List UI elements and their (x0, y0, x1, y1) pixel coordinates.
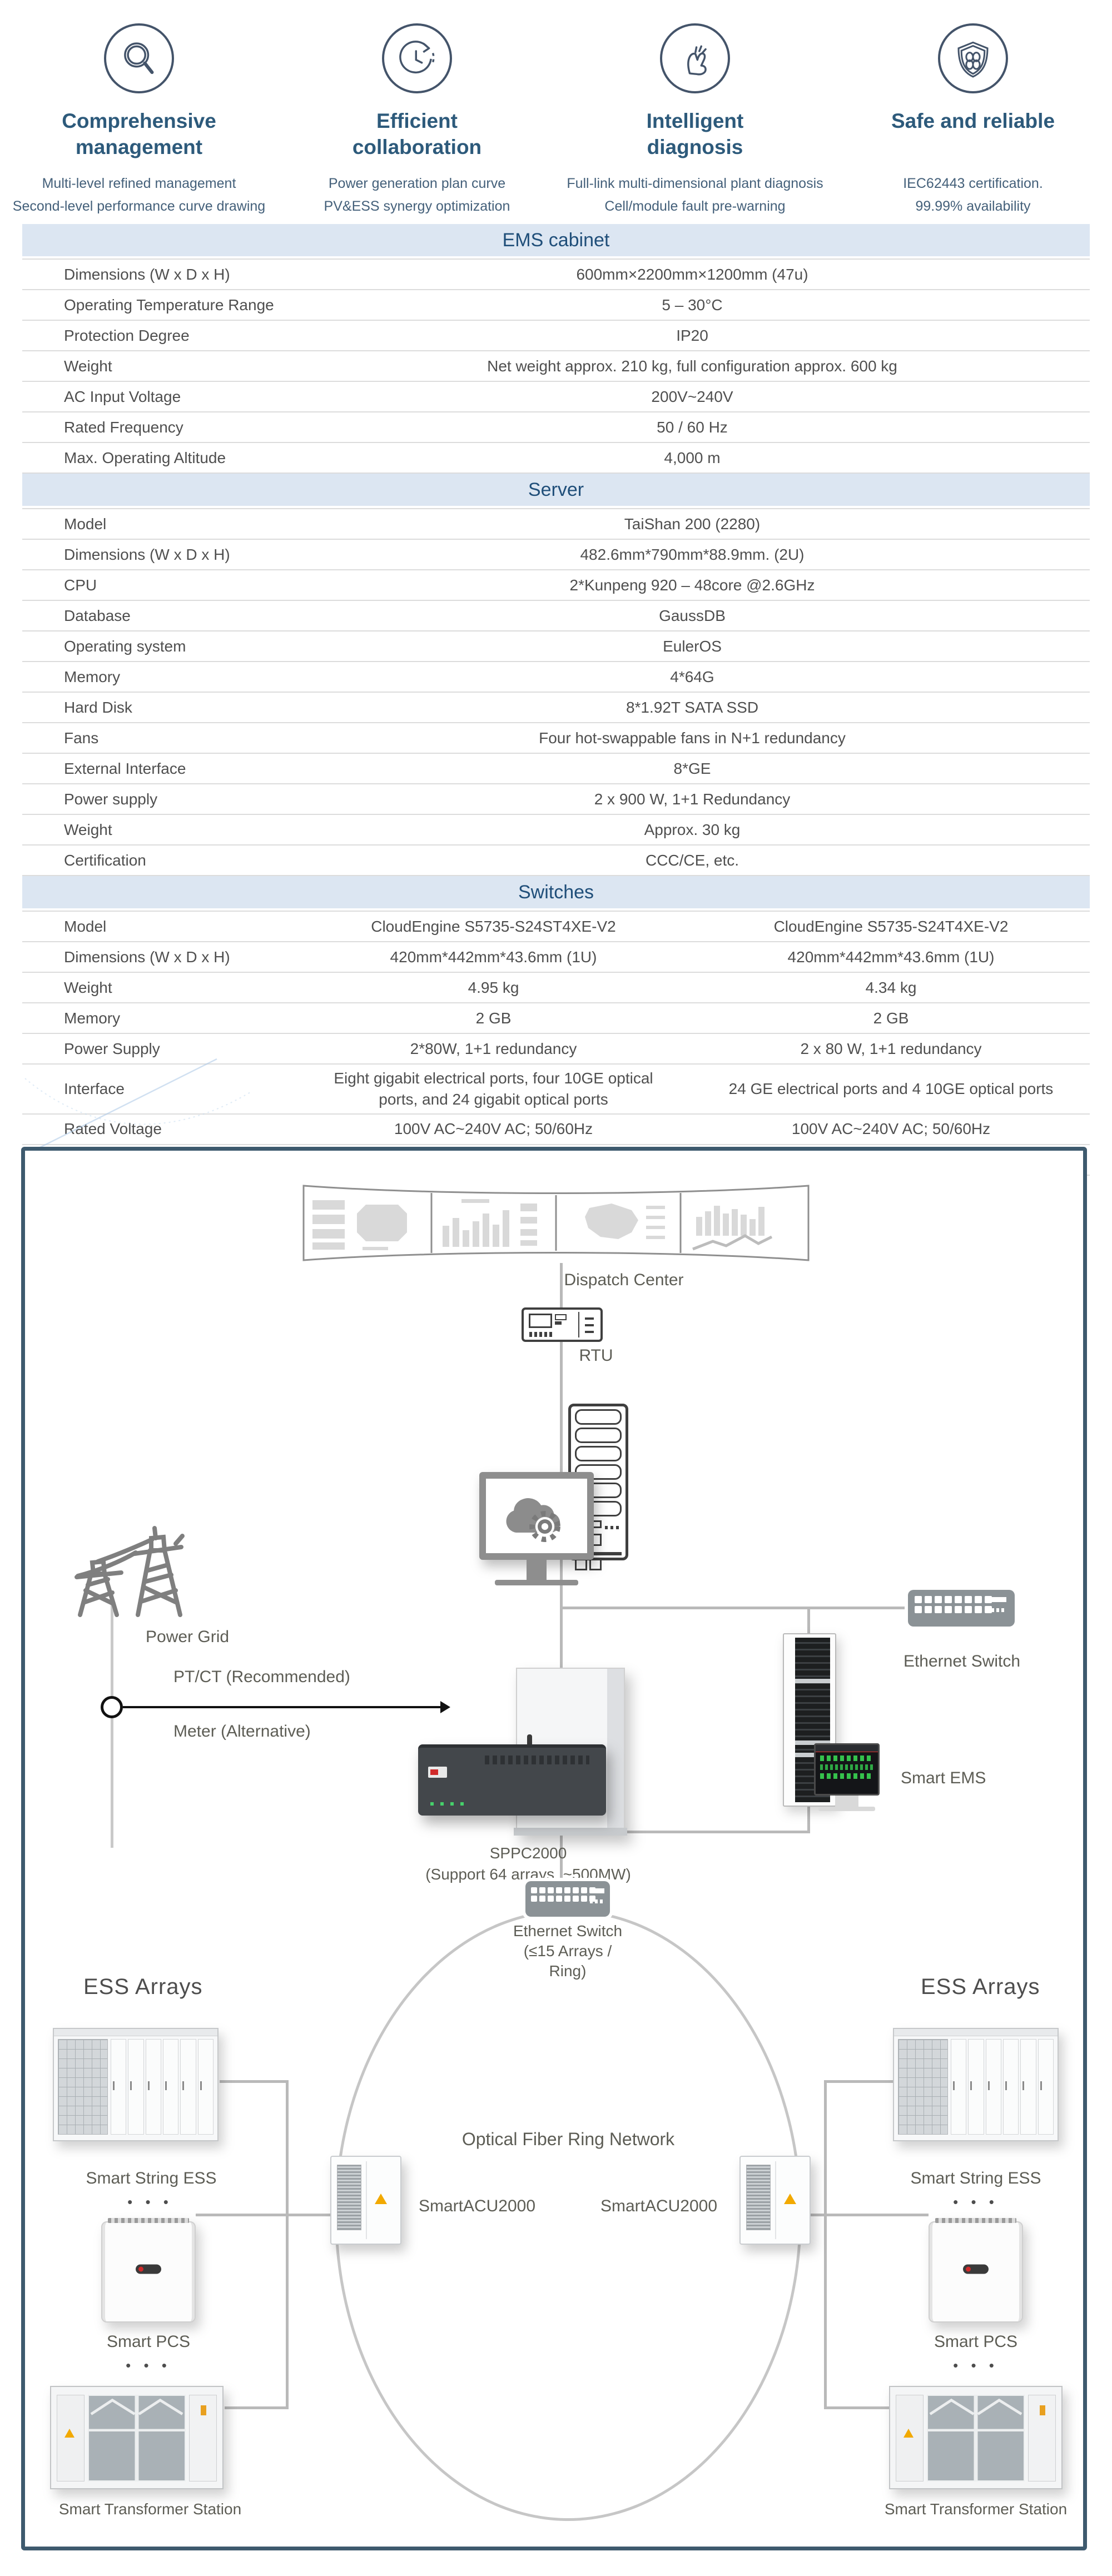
spec-tables: EMS cabinet Dimensions (W x D x H)600mm×… (22, 224, 1090, 1176)
ring-switch-label-2: (≤15 Arrays / (524, 1942, 612, 1960)
ess-arrays-left-heading: ESS Arrays (83, 1975, 203, 2000)
power-grid-icon (72, 1519, 185, 1618)
table-row: Dimensions (W x D x H)420mm*442mm*43.6mm… (22, 942, 1090, 973)
cycle-clock-icon (382, 23, 452, 93)
table-row: Memory4*64G (22, 662, 1090, 693)
left-ess-link (220, 2080, 287, 2083)
table-ems-cabinet: EMS cabinet Dimensions (W x D x H)600mm×… (22, 224, 1090, 474)
smart-ems-monitor-base (818, 1807, 875, 1811)
right-ess-link (825, 2080, 893, 2083)
feature-efficient-collaboration: Efficientcollaboration Power generation … (278, 16, 556, 218)
smart-pcs-left-label: Smart PCS (107, 2333, 190, 2351)
right-transformer-link (825, 2406, 889, 2409)
feature-comprehensive-management: Comprehensivemanagement Multi-level refi… (0, 16, 278, 218)
snap-finger-icon (660, 23, 730, 93)
rtu-icon (522, 1307, 603, 1342)
ess-arrays-right-heading: ESS Arrays (921, 1975, 1040, 2000)
smart-string-ess-left-label: Smart String ESS (86, 2169, 216, 2188)
table-row: Memory2 GB2 GB (22, 1003, 1090, 1034)
ethernet-switch-right-icon (908, 1590, 1015, 1627)
meter-label: Meter (Alternative) (173, 1722, 311, 1741)
feature-title: Intelligentdiagnosis (556, 108, 834, 163)
table-row: DatabaseGaussDB (22, 601, 1090, 631)
table-row: Protection DegreeIP20 (22, 321, 1090, 351)
smart-string-ess-left-icon (53, 2028, 219, 2141)
ellipsis-dots: • • • (953, 2357, 999, 2374)
ethernet-branch-line (560, 1607, 909, 1609)
grid-bus-line (111, 1604, 113, 1848)
dispatch-center-wall (300, 1181, 812, 1265)
table-row: Dimensions (W x D x H)600mm×2200mm×1200m… (22, 260, 1090, 290)
shield-icon (938, 23, 1008, 93)
table-row: External Interface8*GE (22, 754, 1090, 784)
table-row: AC Input Voltage200V~240V (22, 382, 1090, 412)
table-server: Server ModelTaiShan 200 (2280) Dimension… (22, 474, 1090, 876)
smartacu2000-right-icon (739, 2156, 811, 2245)
table-row: ModelTaiShan 200 (2280) (22, 509, 1090, 540)
optical-fiber-ring (335, 1909, 802, 2521)
ring-label: Optical Fiber Ring Network (462, 2129, 674, 2150)
table-row: Hard Disk8*1.92T SATA SSD (22, 693, 1090, 723)
ptct-label: PT/CT (Recommended) (173, 1668, 350, 1687)
ems-return-line-v (807, 1806, 810, 1833)
feature-strip: Comprehensivemanagement Multi-level refi… (0, 16, 1112, 218)
sppc2000-icon (418, 1744, 606, 1816)
smartacu2000-left-icon (330, 2156, 401, 2245)
table-header: EMS cabinet (22, 224, 1090, 256)
smart-transformer-right-icon (889, 2386, 1063, 2489)
feature-intelligent-diagnosis: Intelligentdiagnosis Full-link multi-dim… (556, 16, 834, 218)
decor-pencil-stroke (11, 1045, 300, 1156)
left-transformer-link (225, 2406, 287, 2409)
smartacu2000-right-label: SmartACU2000 (600, 2197, 717, 2216)
spec-page: Comprehensivemanagement Multi-level refi… (0, 0, 1112, 2576)
feature-desc: Full-link multi-dimensional plant diagno… (556, 172, 834, 218)
table-row: WeightNet weight approx. 210 kg, full co… (22, 351, 1090, 382)
table-row: CertificationCCC/CE, etc. (22, 846, 1090, 876)
table-header: Switches (22, 876, 1090, 908)
sppc2000-label: SPPC2000 (490, 1844, 567, 1862)
table-row: Max. Operating Altitude4,000 m (22, 443, 1090, 474)
ptct-arrow-head (440, 1701, 450, 1713)
smart-pcs-right-icon (929, 2221, 1023, 2323)
ptct-arrow-line (123, 1706, 440, 1708)
ring-switch-label-1: Ethernet Switch (513, 1922, 622, 1940)
ellipsis-dots: • • • (126, 2357, 171, 2374)
table-row: WeightApprox. 30 kg (22, 815, 1090, 846)
feature-safe-reliable: Safe and reliable IEC62443 certification… (834, 16, 1112, 218)
smart-pcs-right-label: Smart PCS (934, 2333, 1017, 2351)
table-row: Operating Temperature Range5 – 30°C (22, 290, 1090, 321)
ring-ethernet-switch-icon (525, 1881, 610, 1917)
table-row: Weight4.95 kg4.34 kg (22, 973, 1090, 1003)
grid-tap-node (101, 1696, 123, 1718)
smart-pcs-left-icon (101, 2221, 196, 2323)
smart-string-ess-right-label: Smart String ESS (910, 2169, 1041, 2188)
monitor-base (495, 1580, 578, 1585)
feature-title: Efficientcollaboration (278, 108, 556, 163)
ring-switch-label-3: Ring) (549, 1962, 587, 1980)
feature-title: Comprehensivemanagement (0, 108, 278, 163)
ethernet-switch-right-label: Ethernet Switch (904, 1652, 1020, 1671)
power-grid-label: Power Grid (146, 1628, 229, 1647)
smart-string-ess-right-icon (893, 2028, 1059, 2141)
table-row: FansFour hot-swappable fans in N+1 redun… (22, 723, 1090, 754)
right-column-bus (824, 2080, 827, 2409)
table-row: CPU2*Kunpeng 920 – 48core @2.6GHz (22, 570, 1090, 601)
management-monitor-icon (479, 1472, 594, 1560)
left-pcs-link (196, 2214, 330, 2216)
smart-ems-monitor-stand (835, 1796, 858, 1808)
dispatch-center-label: Dispatch Center (564, 1271, 683, 1290)
table-row: Power supply2 x 900 W, 1+1 Redundancy (22, 784, 1090, 815)
monitor-stand (527, 1560, 547, 1581)
feature-desc: Multi-level refined managementSecond-lev… (0, 172, 278, 218)
table-row: Operating systemEulerOS (22, 631, 1090, 662)
smart-ems-monitor-icon (814, 1743, 880, 1796)
ems-branch-line (807, 1607, 810, 1635)
right-pcs-link (811, 2214, 929, 2216)
smart-transformer-right-label: Smart Transformer Station (885, 2500, 1067, 2518)
ellipsis-dots: • • • (127, 2194, 173, 2211)
ellipsis-dots: • • • (953, 2194, 999, 2211)
table-row: Dimensions (W x D x H)482.6mm*790mm*88.9… (22, 540, 1090, 570)
smart-ems-label: Smart EMS (901, 1769, 986, 1788)
rtu-label: RTU (579, 1346, 613, 1365)
smart-transformer-left-label: Smart Transformer Station (59, 2500, 241, 2518)
table-header: Server (22, 474, 1090, 506)
smartacu2000-left-label: SmartACU2000 (419, 2197, 535, 2216)
table-row: ModelCloudEngine S5735-S24ST4XE-V2CloudE… (22, 912, 1090, 942)
smart-transformer-left-icon (50, 2386, 224, 2489)
feature-desc: IEC62443 certification.99.99% availabili… (834, 172, 1112, 218)
feature-title: Safe and reliable (834, 108, 1112, 163)
left-column-bus (286, 2080, 289, 2409)
cloud-gear-icon (495, 1485, 578, 1546)
feature-desc: Power generation plan curvePV&ESS synerg… (278, 172, 556, 218)
table-row: Rated Frequency50 / 60 Hz (22, 412, 1090, 443)
magnifier-icon (104, 23, 174, 93)
